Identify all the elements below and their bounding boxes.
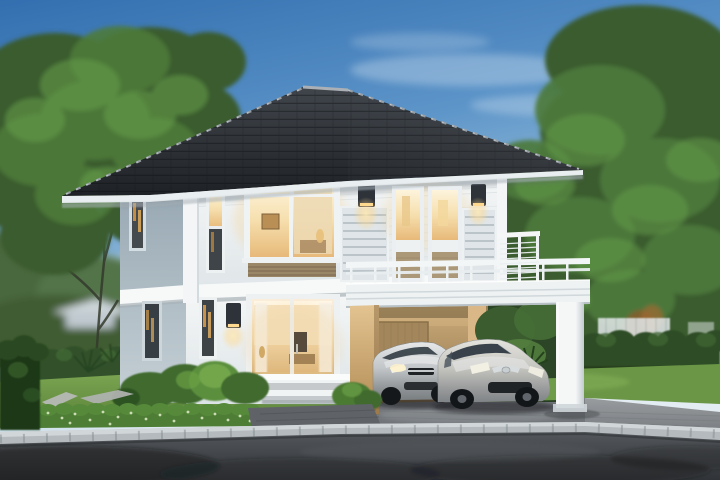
car-wheel <box>381 387 401 405</box>
wall-picture <box>262 214 279 229</box>
low-speckled-hedge <box>37 403 260 428</box>
side-lower-window <box>142 301 162 361</box>
house-scene <box>0 0 720 480</box>
ground-floor-window <box>199 297 217 359</box>
rendered-photo <box>0 0 720 480</box>
carport-slab <box>346 280 590 308</box>
